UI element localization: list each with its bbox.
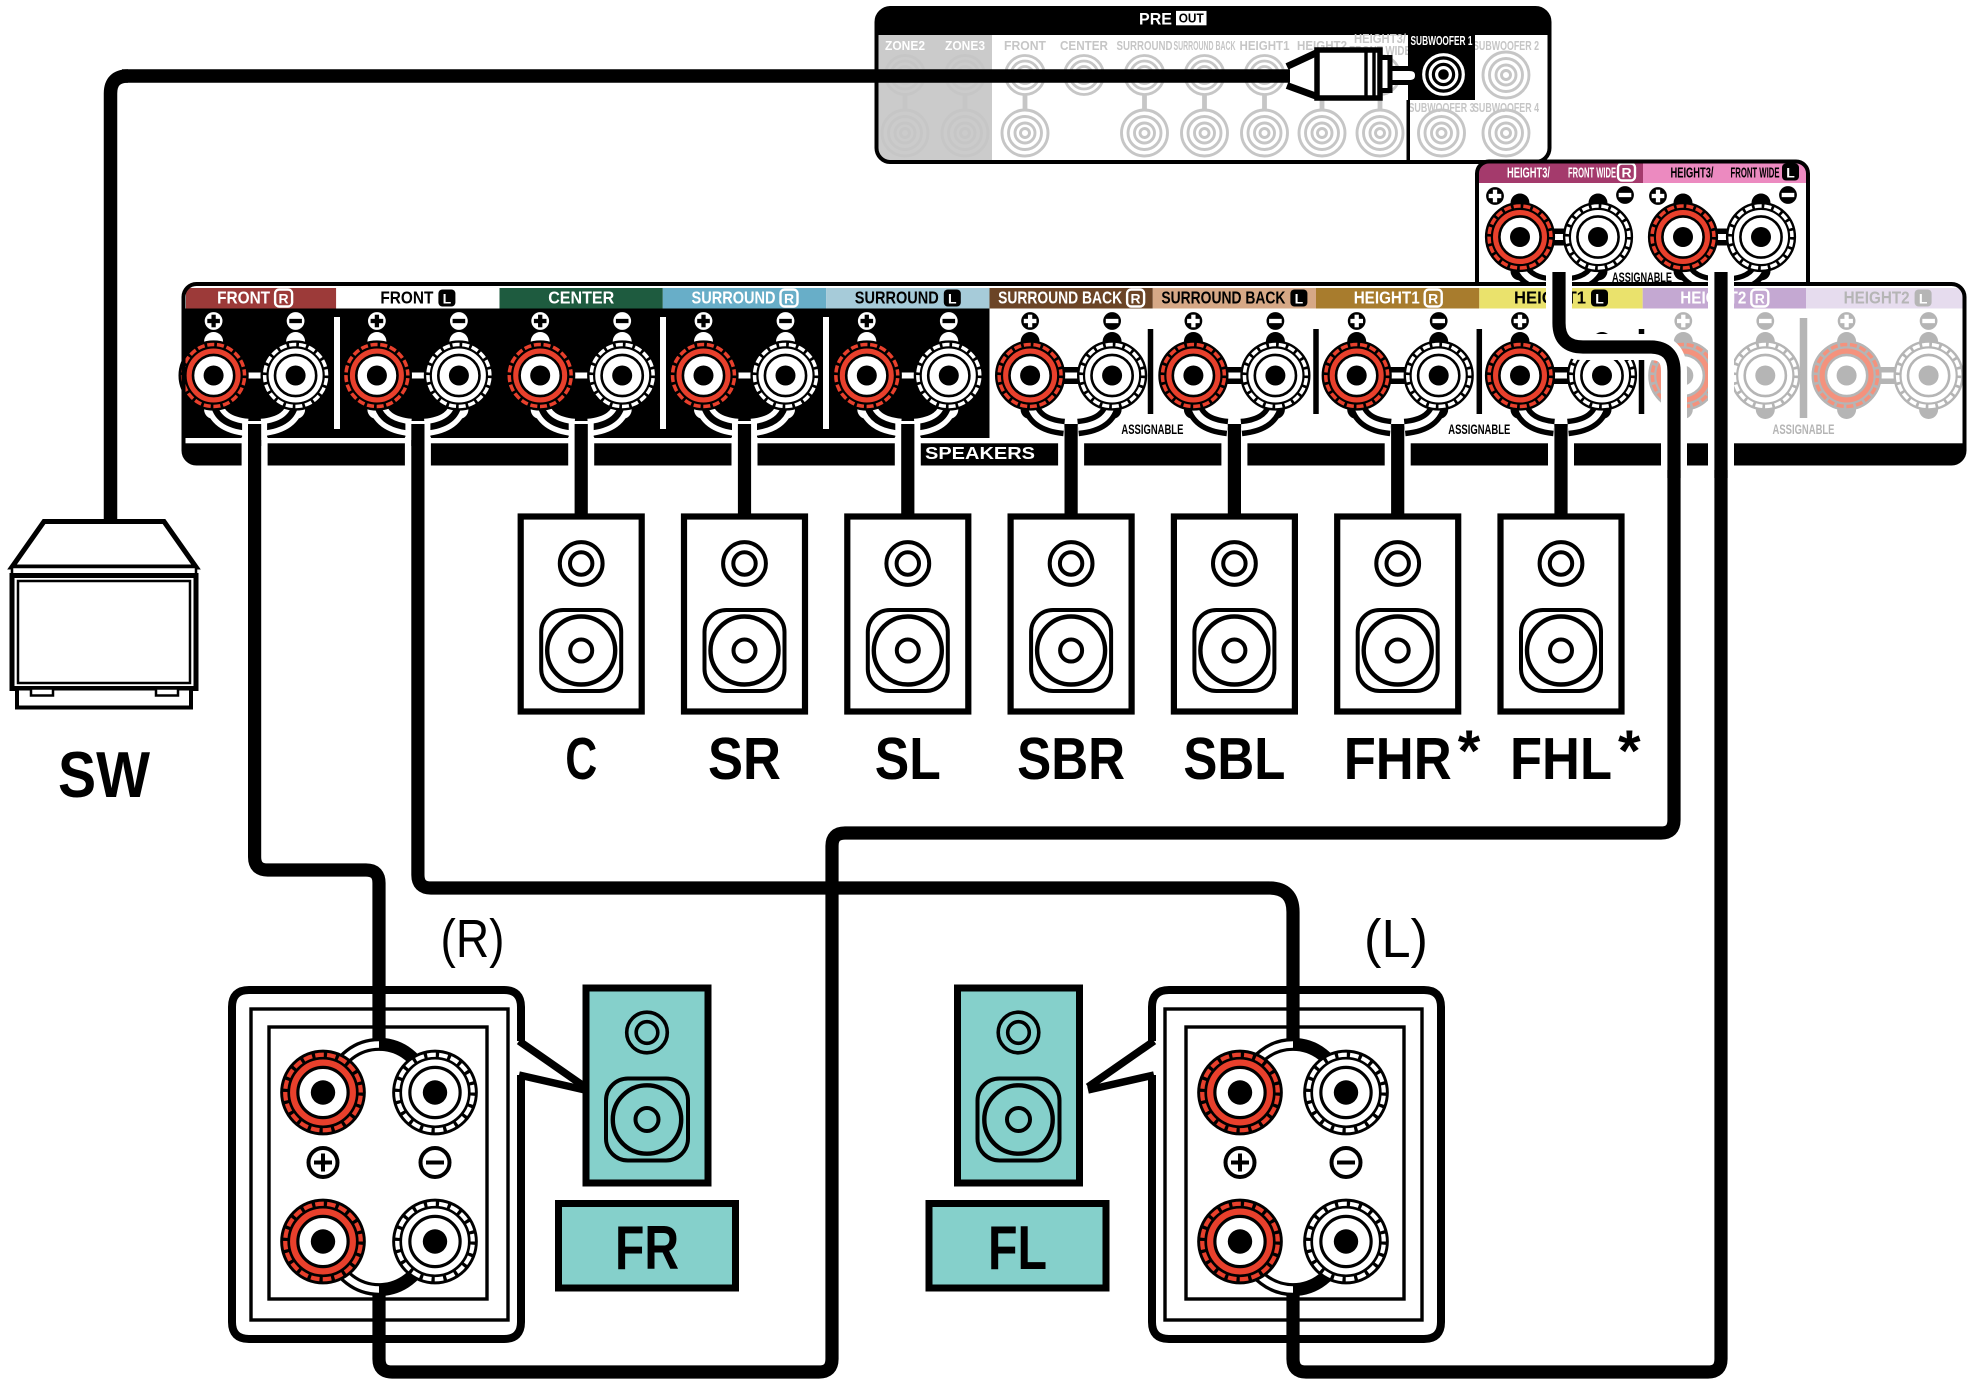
svg-text:R: R — [1131, 291, 1141, 307]
svg-text:FRONT: FRONT — [1004, 39, 1046, 53]
svg-text:PRE: PRE — [1139, 11, 1172, 29]
svg-text:R: R — [279, 291, 289, 307]
svg-text:HEIGHT1: HEIGHT1 — [1240, 39, 1290, 53]
svg-text:SUBWOOFER 3: SUBWOOFER 3 — [1409, 101, 1475, 115]
svg-text:HEIGHT3/: HEIGHT3/ — [1507, 165, 1551, 182]
svg-text:ASSIGNABLE: ASSIGNABLE — [1773, 421, 1835, 437]
svg-text:L: L — [1595, 291, 1604, 307]
svg-text:ZONE2: ZONE2 — [885, 39, 925, 53]
svg-text:FHL: FHL — [1510, 726, 1612, 792]
svg-text:R: R — [1621, 165, 1631, 181]
svg-text:HEIGHT3/: HEIGHT3/ — [1671, 165, 1715, 182]
svg-text:L: L — [948, 291, 957, 307]
svg-text:HEIGHT1: HEIGHT1 — [1354, 288, 1420, 308]
svg-text:*: * — [1458, 719, 1481, 784]
svg-text:SURROUND: SURROUND — [692, 288, 776, 308]
svg-text:L: L — [1786, 165, 1795, 181]
svg-text:*: * — [1618, 719, 1641, 784]
svg-text:FHR: FHR — [1344, 726, 1452, 792]
svg-text:C: C — [565, 726, 597, 792]
svg-text:SBL: SBL — [1183, 726, 1285, 792]
svg-text:SPEAKERS: SPEAKERS — [925, 443, 1035, 463]
svg-text:SURROUND: SURROUND — [855, 288, 939, 308]
svg-text:FL: FL — [988, 1214, 1047, 1283]
svg-text:(R): (R) — [441, 909, 505, 969]
svg-text:SBR: SBR — [1017, 726, 1125, 792]
svg-text:CENTER: CENTER — [548, 288, 614, 308]
svg-text:SURROUND: SURROUND — [1117, 39, 1173, 53]
svg-text:R: R — [1755, 291, 1765, 307]
svg-text:HEIGHT2: HEIGHT2 — [1844, 288, 1910, 308]
svg-text:SURROUND BACK: SURROUND BACK — [1174, 39, 1236, 53]
svg-text:L: L — [1919, 291, 1928, 307]
svg-text:SURROUND BACK: SURROUND BACK — [998, 288, 1122, 308]
svg-text:SW: SW — [58, 738, 151, 811]
svg-text:(L): (L) — [1364, 909, 1428, 969]
svg-text:R: R — [784, 291, 794, 307]
svg-text:OUT: OUT — [1179, 12, 1204, 26]
svg-text:FRONT: FRONT — [217, 288, 270, 308]
svg-text:R: R — [1428, 291, 1438, 307]
svg-text:FRONT WIDE: FRONT WIDE — [1568, 165, 1616, 182]
svg-text:ASSIGNABLE: ASSIGNABLE — [1448, 421, 1510, 437]
svg-text:ZONE3: ZONE3 — [945, 39, 985, 53]
svg-text:FRONT WIDE: FRONT WIDE — [1731, 165, 1780, 182]
svg-text:L: L — [443, 291, 452, 307]
svg-text:SL: SL — [875, 726, 941, 792]
svg-text:L: L — [1295, 291, 1304, 307]
svg-text:SUBWOOFER 1: SUBWOOFER 1 — [1411, 34, 1473, 48]
svg-text:SR: SR — [708, 726, 781, 792]
svg-text:SUBWOOFER 4: SUBWOOFER 4 — [1473, 101, 1539, 115]
svg-text:FRONT: FRONT — [380, 288, 433, 308]
svg-text:CENTER: CENTER — [1060, 39, 1108, 53]
svg-text:ASSIGNABLE: ASSIGNABLE — [1121, 421, 1183, 437]
svg-text:SURROUND BACK: SURROUND BACK — [1161, 288, 1285, 308]
svg-text:FR: FR — [615, 1214, 679, 1283]
